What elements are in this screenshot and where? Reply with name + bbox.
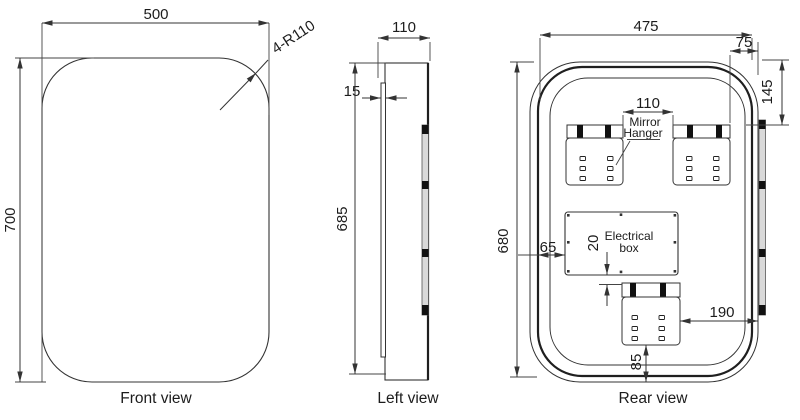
left-hanger-bar <box>422 125 429 315</box>
electrical-box-label-line2: box <box>619 241 638 255</box>
rear-hanger-gap-text: 110 <box>636 95 660 112</box>
left-depth-dim-text: 110 <box>392 19 416 36</box>
rear-side-hanger-strip <box>759 120 766 315</box>
front-height-dim-text: 700 <box>2 207 19 232</box>
front-view: 500 700 4-R110 Front view <box>2 6 318 407</box>
rear-hanger-side-offset-text: 75 <box>736 34 753 51</box>
drawing-svg: 500 700 4-R110 Front view <box>0 0 800 420</box>
left-glass-profile <box>381 83 386 357</box>
rear-box-bottom-gap-text: 20 <box>585 235 602 252</box>
left-thickness-dim-text: 15 <box>344 83 361 100</box>
rear-width-dimension: 475 <box>540 18 752 100</box>
front-width-dimension: 500 <box>42 6 269 23</box>
left-back-panel-outline <box>385 63 428 380</box>
rear-bottom-hanger-bottom-text: 85 <box>628 354 645 371</box>
mirror-hanger-bottom <box>622 283 680 345</box>
rear-hanger-top-offset-text: 145 <box>759 79 776 104</box>
front-height-dimension: 700 <box>2 58 20 382</box>
mirror-hanger-top-right <box>673 125 730 185</box>
rear-hanger-side-offset-dimension: 75 <box>730 34 758 123</box>
rear-bottom-hanger-side-dimension: 190 <box>680 304 758 321</box>
rear-view: Electrical box 475 75 <box>495 18 789 407</box>
front-view-label: Front view <box>120 390 192 407</box>
rear-width-dim-text: 475 <box>633 18 658 35</box>
mirror-hanger-top-left <box>566 125 623 185</box>
left-thickness-dimension: 15 <box>344 83 407 100</box>
front-mirror-outline <box>42 58 269 382</box>
front-width-dim-text: 500 <box>143 6 168 23</box>
left-height-dim-text: 685 <box>334 206 351 231</box>
rear-height-dimension: 680 <box>495 62 537 377</box>
left-height-dimension: 685 <box>334 63 386 374</box>
electrical-box: Electrical box <box>565 212 678 275</box>
rear-height-dim-text: 680 <box>495 228 512 253</box>
rear-box-side-offset-dimension: 65 <box>518 239 565 256</box>
rear-box-bottom-gap-dimension: 20 <box>585 235 622 306</box>
front-radius-dim-text: 4-R110 <box>269 17 319 57</box>
rear-box-side-offset-text: 65 <box>540 239 557 256</box>
mirror-hanger-label-line2: Hanger <box>623 126 662 140</box>
rear-view-label: Rear view <box>619 390 689 407</box>
rear-bottom-hanger-side-text: 190 <box>709 304 734 321</box>
left-view-label: Left view <box>377 390 439 407</box>
left-depth-dimension: 110 <box>378 19 430 78</box>
technical-drawing-canvas: 500 700 4-R110 Front view <box>0 0 800 420</box>
left-view: 110 15 685 Left view <box>334 19 439 407</box>
